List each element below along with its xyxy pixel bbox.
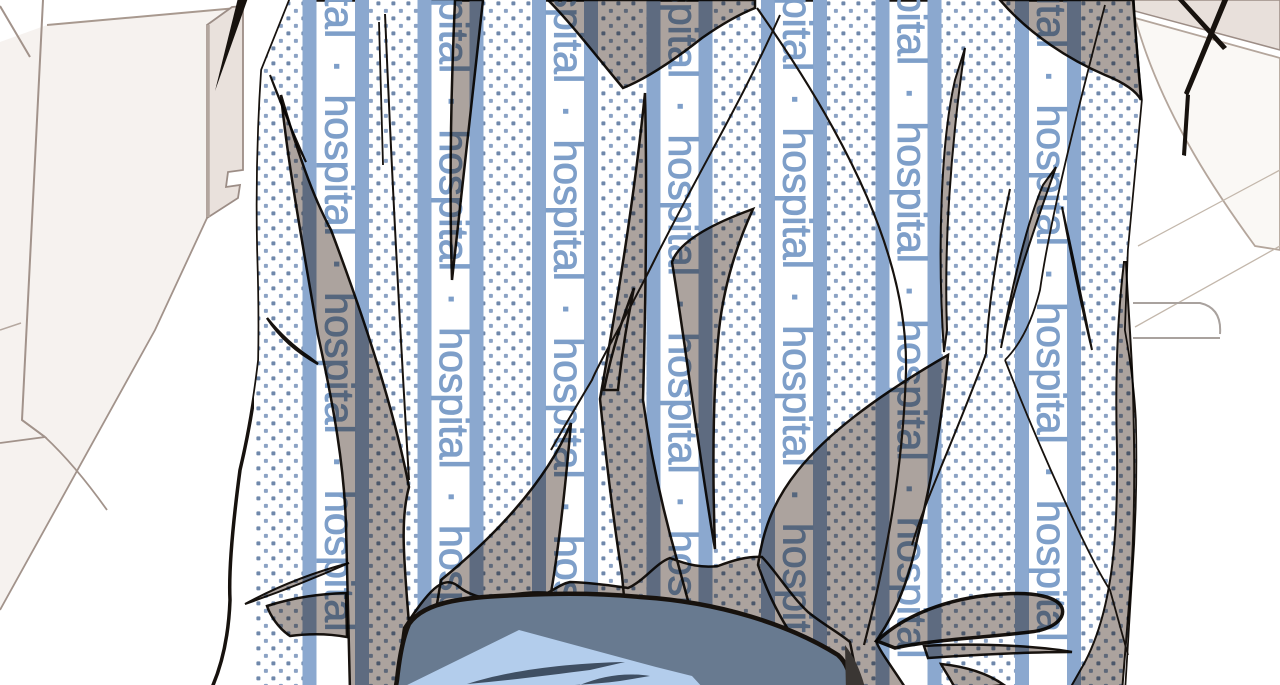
svg-text:hospital · hospital · hospital: hospital · hospital · hospital · hospita…	[1028, 0, 1074, 641]
